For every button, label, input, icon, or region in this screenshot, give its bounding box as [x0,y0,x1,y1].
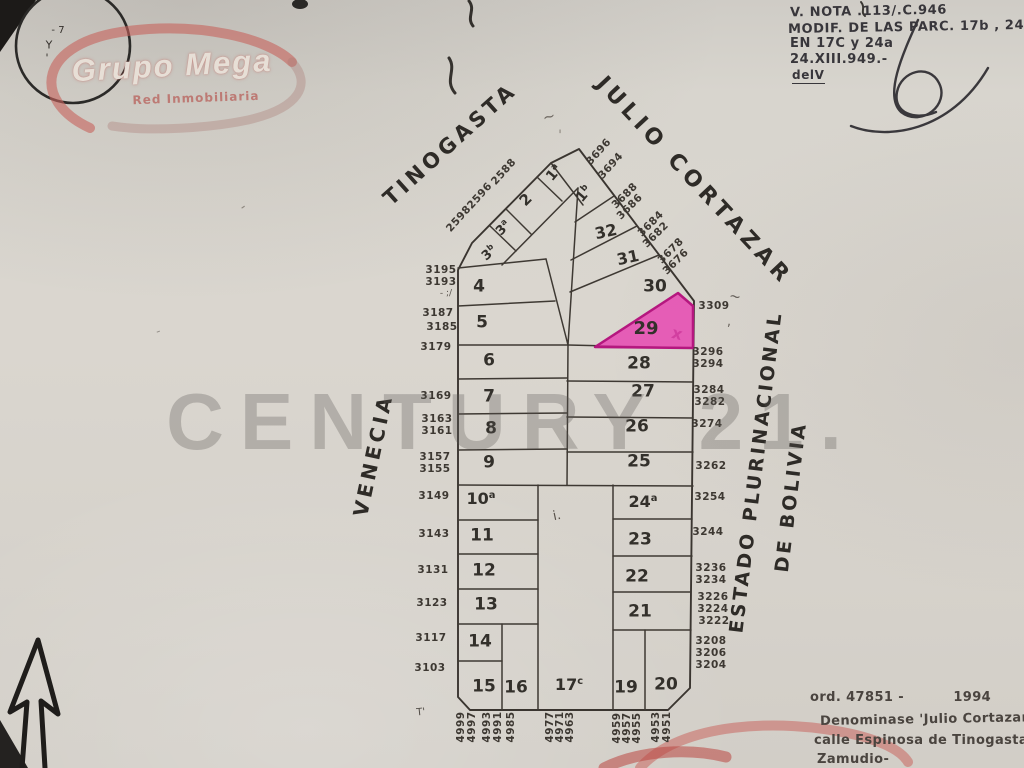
note-line: EN 17C y 24a [790,36,894,51]
boundary-number: 3309 [698,301,729,312]
boundary-number: 3204 [695,660,726,671]
parcel-label: 15 [472,679,496,696]
boundary-number: 3222 [698,616,729,627]
boundary-number: 4963 [565,711,576,742]
boundary-number: 3179 [420,342,451,353]
parcel-label: 19 [614,680,638,697]
parcel-label: 20 [654,677,678,694]
parcel-label: 10a [467,491,496,507]
boundary-number: 3187 [422,308,453,319]
parcel-label: 6 [483,353,495,370]
boundary-number: 3236 [695,563,726,574]
boundary-number: 3224 [697,604,728,615]
boundary-number: 3195 [425,265,456,276]
scan-ink-mark [449,58,455,93]
boundary-number: 3117 [415,633,446,644]
parcel-label: 24a [629,494,658,510]
boundary-number: 3193 [425,277,456,288]
boundary-number: 4955 [632,712,643,743]
boundary-number: 3296 [692,347,723,358]
parcel-label: 32 [593,222,618,242]
note-line: Zamudio- [817,752,889,767]
boundary-number: 3226 [697,592,728,603]
pencil-mark: ~ [728,289,742,305]
boundary-number: 3206 [695,648,726,659]
boundary-number: 3123 [416,598,447,609]
boundary-number: 4951 [662,711,673,742]
boundary-number: 3234 [695,575,726,586]
north-arrow [10,640,58,768]
pencil-mark: - 7 [51,26,64,36]
parcel-label: 11 [470,528,494,545]
boundary-number: 3131 [417,565,448,576]
parcel-label: 21 [628,604,652,621]
boundary-number: 3254 [694,492,725,503]
boundary-number: 3208 [695,636,726,647]
boundary-number: 4997 [467,711,478,742]
parcel-label: 29 [633,320,658,338]
boundary-number: 4985 [506,711,517,742]
parcel-label: 28 [627,356,651,373]
pencil-mark: T' [416,708,426,719]
parcel-label: 14 [468,634,492,651]
boundary-number: 4991 [493,711,504,742]
boundary-number: 3149 [418,491,449,502]
pencil-mark: , [727,316,731,329]
parcel-label: 23 [628,532,652,549]
parcel-label: 31 [615,248,640,268]
parcel-label: 13 [474,597,498,614]
parcel-label: 30 [643,279,667,296]
note-line: 24.XIII.949.- [790,52,888,67]
boundary-number: 3244 [692,527,723,538]
pencil-mark: ' [45,53,48,64]
scanned-parcel-map-page: TINOGASTA JULIO CORTAZAR VENECIA ESTADO … [0,0,1024,768]
boundary-number: 3185 [426,322,457,333]
pencil-mark: Y [46,40,53,51]
boundary-number: 4993 [482,711,493,742]
parcel-label: 16 [504,680,528,697]
century21-watermark: CENTURY 21. [166,376,858,468]
note-signoff: delV [792,68,825,84]
note-line: calle Espinosa de Tinogasta [814,733,1024,748]
scan-blob [292,0,308,9]
parcel-label: 5 [476,315,488,332]
boundary-number: 3103 [414,663,445,674]
pencil-mark: - ;/ [440,290,452,299]
boundary-number: 3143 [418,529,449,540]
parcel-label: 17c [555,677,583,693]
note-line: V. NOTA .113/.C.946 [790,3,947,21]
note-line: ord. 47851 - 1994 [810,690,991,705]
scan-ink-mark-top [469,1,473,26]
pencil-mark: ' [558,130,562,143]
parcel-label: 4 [473,279,485,296]
parcel-label: 12 [472,563,496,580]
parcel-label: 22 [625,569,649,586]
boundary-number: 4999 [456,711,467,742]
boundary-number: 4953 [651,711,662,742]
boundary-number: 3294 [692,359,723,370]
